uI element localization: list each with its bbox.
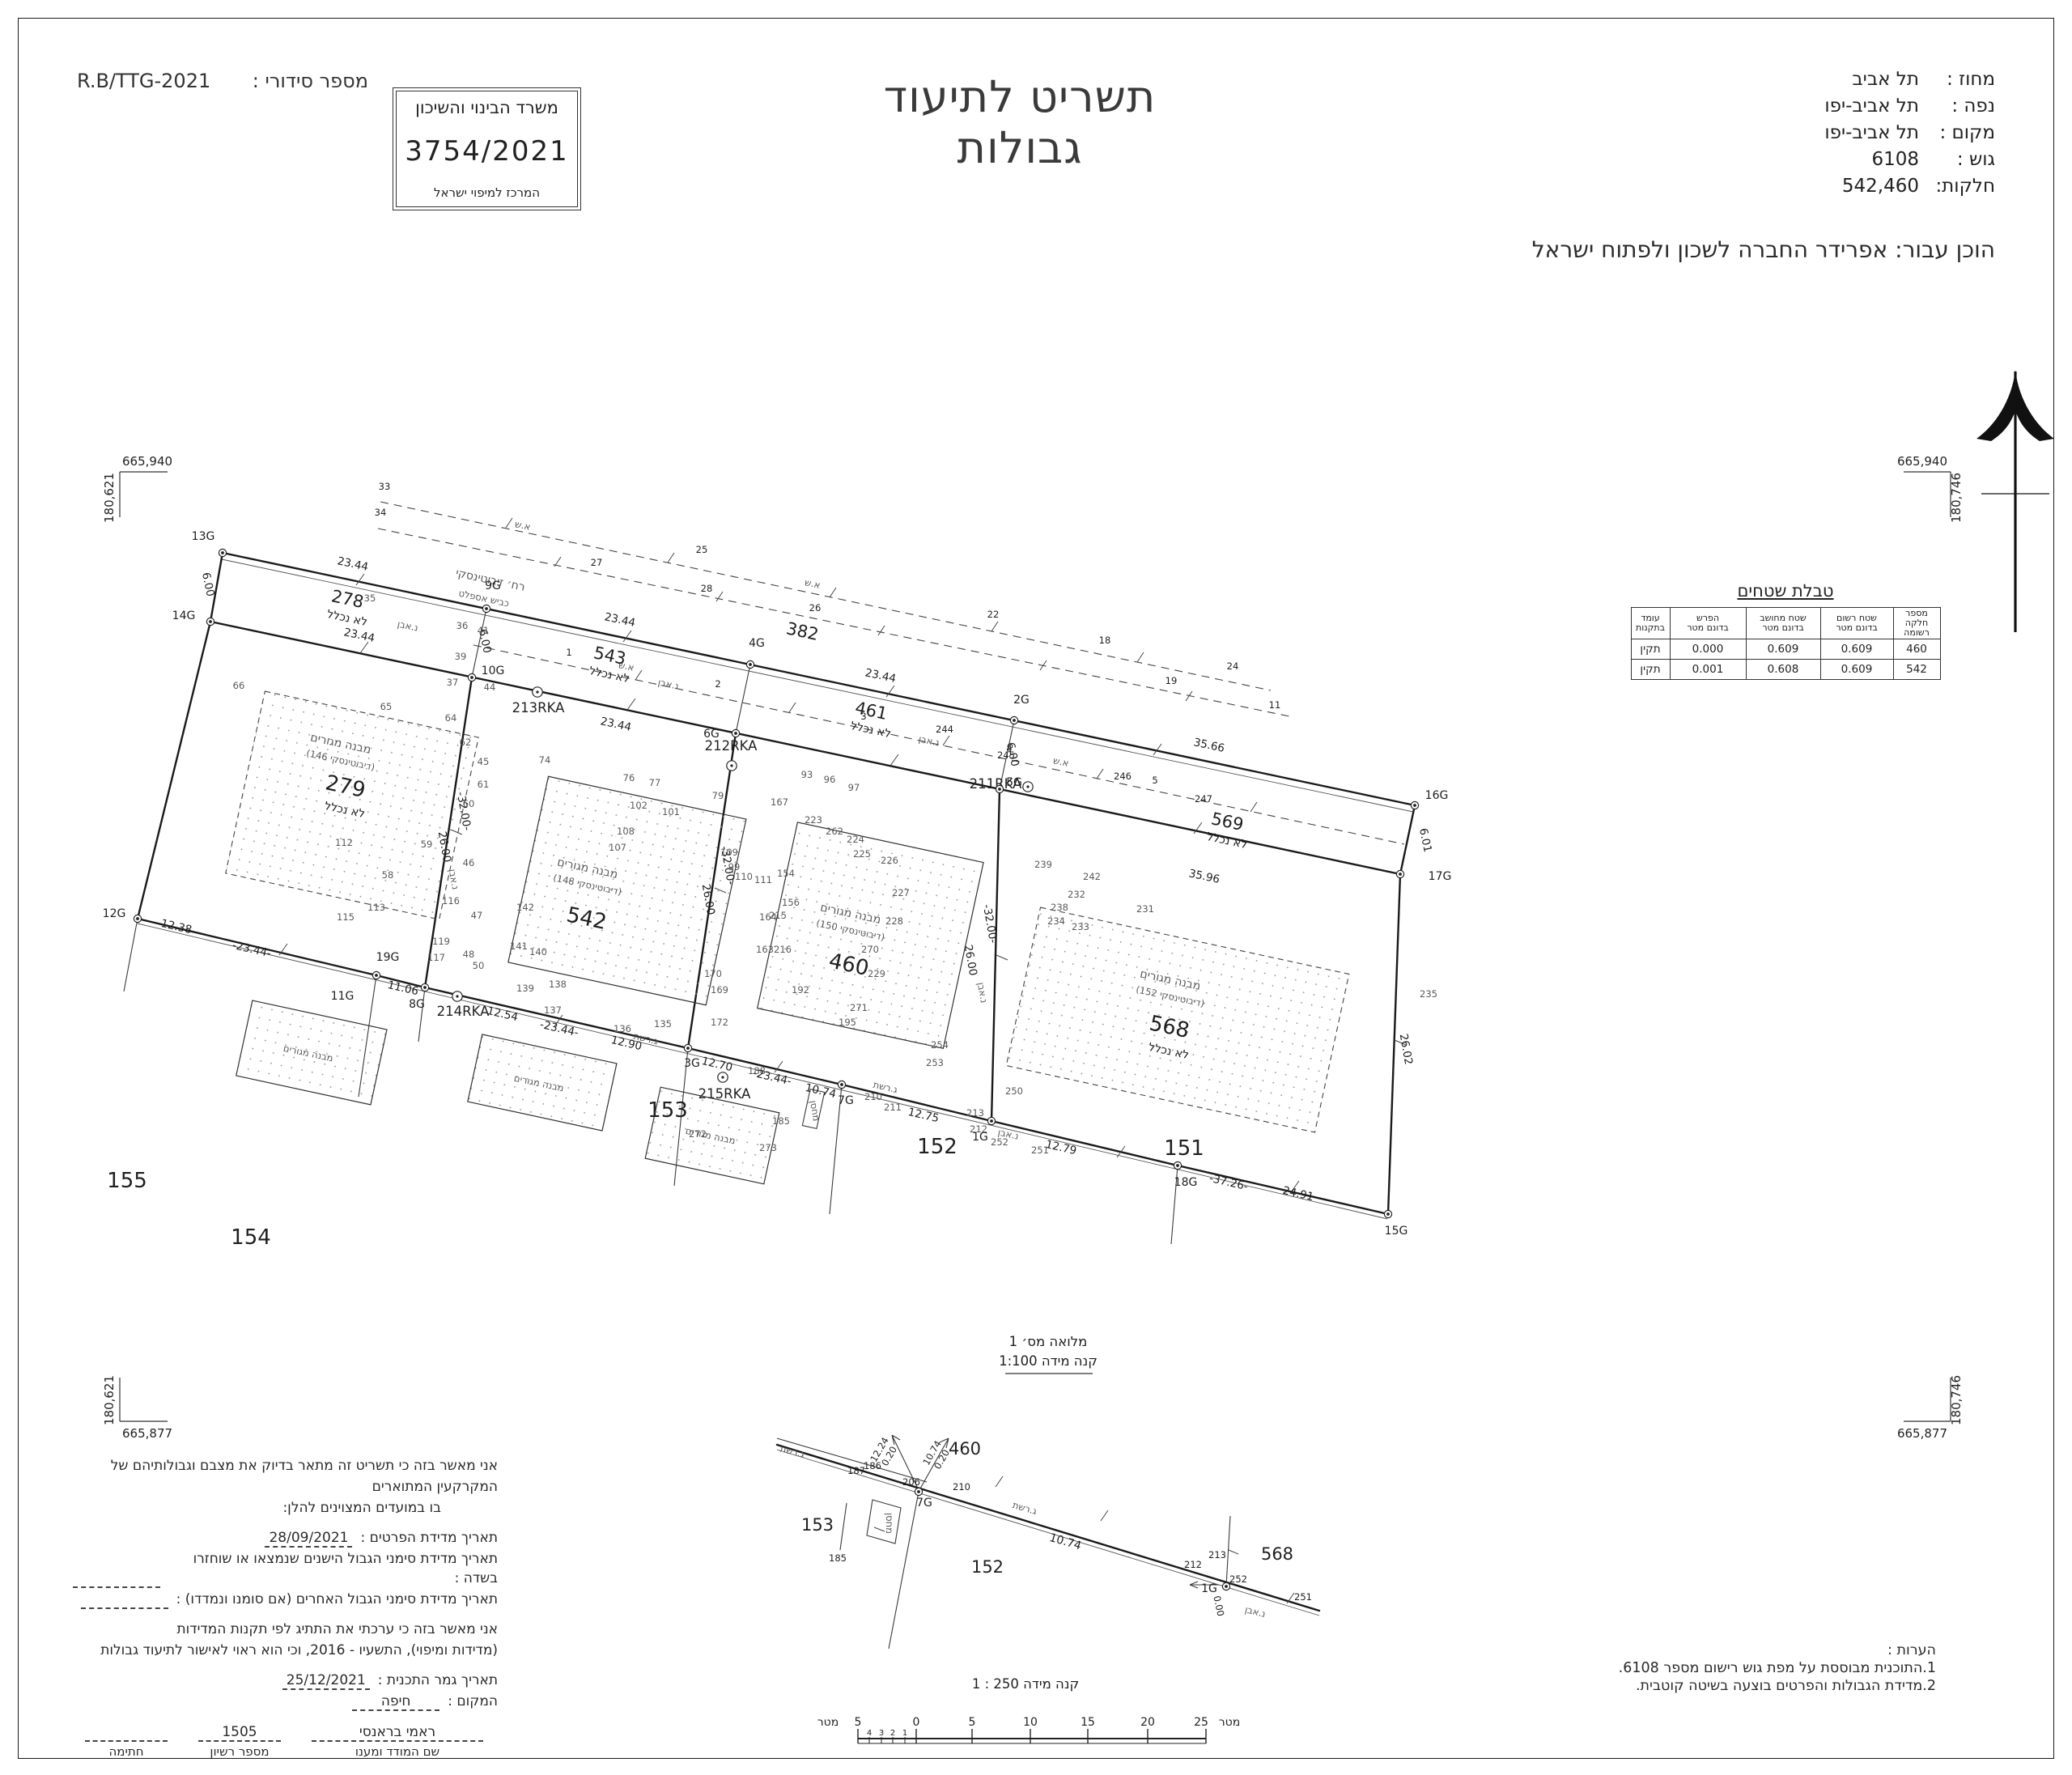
plan-label: ג.רשת — [1011, 1499, 1038, 1517]
control-point-marker — [1023, 782, 1033, 792]
plan-label: 102 — [630, 800, 647, 811]
plan-label: 35.66 — [1192, 736, 1225, 755]
boundary-point-marker — [372, 971, 380, 979]
signature-row: ראמי בראנסי שם המודד ומענו 1505 מספר רשי… — [73, 1724, 498, 1759]
boundary-point-marker — [1010, 716, 1017, 724]
boundary-point-marker — [1174, 1161, 1181, 1169]
date-value: 28/09/2021 — [265, 1531, 352, 1548]
plan-label: 62 — [460, 737, 472, 748]
plan-label: 167 — [771, 796, 788, 808]
plan-label: לא נכלל — [1205, 830, 1248, 851]
plan-label: 247 — [1195, 793, 1212, 805]
plan-label: 188 — [748, 1065, 766, 1076]
plan-label: א.ש — [1052, 754, 1070, 769]
plan-label: 13G — [192, 530, 215, 543]
plan-label: 17G — [1429, 870, 1452, 883]
areas-table-header-row: מספר חלקהרשומה שטח רשוםבדונם מטר שטח מחו… — [1631, 608, 1940, 639]
plan-label: 461 — [853, 698, 889, 724]
note-item-1: 1.התוכנית מבוססת על מפת גוש רישום מספר 6… — [1596, 1659, 1936, 1677]
plan-label: 24 — [1227, 660, 1239, 672]
boundary-point-marker — [987, 1117, 995, 1124]
plan-label: 11 — [1269, 699, 1281, 711]
sig-signature-col: חתימה — [85, 1724, 168, 1759]
survey-sheet: מספר סידורי : R.B/TTG-2021 משרד הבינוי ו… — [0, 0, 2072, 1775]
cadastral-plan: רח׳ זיבוטינסקיכביש אספלט382א.שא.שא.שא.ש2… — [101, 425, 1477, 1271]
cert-place: המקום : חיפה — [73, 1692, 498, 1711]
boundary-point-marker — [746, 660, 754, 668]
boundary-point-marker — [996, 785, 1003, 792]
plan-label: 45 — [478, 756, 490, 767]
plan-label: 170 — [704, 968, 722, 979]
plan-label: 233 — [1072, 921, 1089, 932]
areas-table-block: טבלת שטחים מספר חלקהרשומה שטח רשוםבדונם … — [1627, 581, 1944, 680]
plan-label: 23.44 — [342, 626, 376, 645]
plan-label: 226 — [881, 855, 898, 866]
info-row-place: מקום : תל אביב-יפו — [1752, 120, 1995, 147]
plan-label: 5 — [969, 1716, 976, 1729]
plan-label: 225 — [853, 848, 871, 860]
plan-label: נ.אבן — [657, 677, 680, 692]
plan-label: 569 — [1209, 809, 1245, 834]
plan-label: 153 — [801, 1515, 834, 1535]
stamp-org-name: משרד הבינוי והשיכון — [415, 98, 558, 117]
plan-label: 110 — [735, 871, 753, 882]
plan-label: 254 — [931, 1039, 949, 1051]
plan-label: 238 — [1051, 902, 1068, 913]
scale-bar-lines — [858, 1729, 1206, 1743]
plan-label: מטר — [1219, 1716, 1241, 1729]
info-row-block: גוש : 6108 — [1752, 147, 1995, 173]
areas-table-title: טבלת שטחים — [1627, 581, 1944, 601]
plan-label: 244 — [936, 724, 953, 735]
plan-label: 44 — [484, 682, 496, 693]
ministry-stamp-box: משרד הבינוי והשיכון 3754/2021 המרכז למיפ… — [393, 87, 581, 210]
boundary-point-marker — [1411, 801, 1418, 809]
plan-label: 214RKA — [437, 1004, 490, 1019]
plan-label: 1 — [902, 1729, 907, 1738]
plan-label: 1 — [566, 647, 571, 658]
surveyor-name-value: ראמי בראנסי — [312, 1724, 483, 1742]
plan-label: 154 — [777, 868, 795, 879]
table-row: 460 0.609 0.609 0.000 תקין — [1631, 639, 1940, 660]
control-point-marker — [452, 992, 462, 1001]
plan-label: 231 — [1136, 903, 1154, 915]
plan-label: 26 — [809, 602, 822, 614]
sig-name-col: ראמי בראנסי שם המודד ומענו — [312, 1724, 483, 1759]
plan-label: 210 — [953, 1481, 970, 1493]
plan-label: 115 — [337, 911, 355, 923]
plan-label: 101 — [662, 806, 680, 817]
plan-label: 11G — [331, 990, 355, 1003]
plan-label: -37.26- — [1208, 1172, 1250, 1194]
plan-label: 212 — [1184, 1559, 1202, 1570]
plan-label: 16G — [1425, 789, 1449, 802]
plan-label: 34 — [375, 507, 387, 518]
svg-text:665,877: 665,877 — [1897, 1426, 1947, 1441]
plan-label: 239 — [1034, 859, 1052, 870]
plan-label: 3 — [879, 1729, 884, 1738]
plan-label: 8G — [409, 998, 425, 1011]
plan-label: 228 — [885, 915, 903, 927]
plan-label: מחסן — [808, 1099, 822, 1122]
plan-label: 117 — [427, 952, 445, 963]
plan-label: 6.00 — [199, 571, 217, 598]
plan-label: 18G — [1174, 1176, 1198, 1189]
plan-label: 252 — [1229, 1573, 1247, 1585]
plan-label: 4G — [749, 637, 765, 650]
svg-text:665,877: 665,877 — [122, 1426, 172, 1441]
plan-label: 93 — [801, 769, 813, 780]
plan-label: 37 — [447, 677, 459, 688]
plan-label: 60 — [463, 798, 475, 809]
notes-title: הערות : — [1596, 1641, 1936, 1659]
plan-label: 139 — [516, 983, 534, 994]
col-parcel-number: מספר חלקהרשומה — [1893, 608, 1940, 639]
sig-license-col: 1505 מספר רשיון — [198, 1724, 281, 1759]
info-row-subdistrict: נפה : תל אביב-יפו — [1752, 93, 1995, 120]
plan-label: 2 — [890, 1729, 895, 1738]
grid-corner-bottom-right: 180,746 665,877 — [1894, 1368, 1983, 1461]
boundary-point-marker — [421, 983, 428, 991]
surveyor-identity-row: ראמי בראנסי רמזי קעואר - אלמותנבי 22 -חי… — [73, 1765, 498, 1775]
plan-label: 271 — [850, 1002, 868, 1013]
plan-label: 15 — [1081, 1716, 1095, 1729]
plan-label: 246 — [1114, 771, 1132, 782]
serial-value: R.B/TTG-2021 — [77, 70, 210, 92]
info-row-district: מחוז : תל אביב — [1752, 66, 1995, 93]
plan-label: 58 — [382, 869, 394, 881]
plan-label: נ.אבן — [447, 868, 461, 890]
plan-label: 2G — [1013, 694, 1030, 707]
plan-label: 0 — [913, 1716, 920, 1729]
plan-label: 141 — [510, 941, 528, 952]
plan-label: 12G — [103, 907, 126, 920]
plan-label: 250 — [1005, 1085, 1023, 1097]
plan-label: 152 — [971, 1557, 1004, 1577]
boundary-point-marker — [482, 605, 490, 612]
plan-label: 23.44 — [603, 610, 636, 630]
plan-label: 185 — [772, 1115, 790, 1127]
plan-label: 172 — [711, 1017, 728, 1028]
surveyor-certification: אני מאשר בזה כי תשריט זה מתאר בדיוק את מ… — [73, 1455, 498, 1775]
plan-label: 163 — [756, 944, 774, 955]
plan-label: 12.75 — [906, 1106, 940, 1125]
plan-label: 39 — [455, 651, 467, 662]
plan-label: 245 — [997, 749, 1015, 761]
scale-bar: 1 : 250 קנה מידהמטר50510152025מטר4321 — [813, 1666, 1267, 1763]
plan-label: 543 — [592, 643, 627, 669]
place-value: חיפה — [352, 1694, 439, 1711]
plan-label: 2 — [715, 678, 720, 690]
plan-label: 19 — [1165, 675, 1178, 686]
plan-label: 96 — [824, 774, 836, 785]
plan-label: 210 — [864, 1091, 882, 1102]
plan-label: 10.74 — [804, 1081, 837, 1101]
date-value — [73, 1586, 160, 1588]
plan-label: 213RKA — [512, 700, 565, 716]
boundary-point-marker — [838, 1081, 845, 1088]
boundary-point-marker — [206, 618, 214, 625]
plan-label: 119 — [432, 936, 450, 947]
plan-label: 77 — [649, 777, 661, 788]
plan-label: 33 — [379, 481, 391, 492]
plan-label: 1G — [1201, 1582, 1217, 1595]
plan-label: 41 — [478, 625, 490, 636]
plan-label: 97 — [848, 782, 860, 793]
plan-label: 50 — [473, 960, 485, 971]
plan-label: 4 — [867, 1729, 872, 1738]
control-point-marker — [727, 761, 737, 771]
boundary-point-marker — [219, 549, 226, 556]
boundary-point-marker — [732, 729, 739, 737]
plan-label: מטר — [817, 1716, 839, 1729]
date-value — [81, 1607, 168, 1609]
note-item-2: 2.מדידת הגבולות והפרטים בוצעה בשיטה קוטב… — [1596, 1677, 1936, 1695]
date-value: 25/12/2021 — [282, 1673, 370, 1690]
serial-label: מספר סידורי : — [253, 70, 368, 92]
plan-label: נ.אבן — [1244, 1603, 1267, 1620]
cert-date-old-markers: תאריך מדידת סימני הגבול הישנים שנמצאו או… — [73, 1549, 498, 1588]
plan-label: נ.אבן — [918, 733, 940, 749]
plan-label: 10.74 — [1048, 1531, 1083, 1552]
plan-label: 66 — [233, 680, 245, 691]
plan-label: 142 — [516, 902, 534, 913]
control-point-marker — [533, 687, 542, 697]
buildings — [226, 691, 1349, 1184]
plan-label: 251 — [1031, 1144, 1049, 1156]
plan-label: 74 — [539, 754, 551, 766]
plan-label: 23.44 — [864, 666, 897, 686]
plan-label: 26.02 — [1397, 1033, 1415, 1066]
boundary-point-marker — [1396, 870, 1403, 877]
cert-paragraph-2: אני מאשר בזה כי ערכתי את התתיג לפי תקנות… — [73, 1619, 498, 1661]
col-registered-area: שטח רשוםבדונם מטר — [1820, 608, 1893, 639]
plan-label: 15G — [1385, 1225, 1408, 1238]
control-point-marker — [718, 1072, 728, 1082]
plan-label: 195 — [839, 1017, 856, 1028]
ministry-stamp-inner: משרד הבינוי והשיכון 3754/2021 המרכז למיפ… — [396, 91, 578, 207]
plan-label: 153 — [647, 1098, 688, 1123]
plan-label: 568 — [1261, 1544, 1293, 1564]
plan-label: 0.00 — [1211, 1595, 1226, 1617]
plan-label: 234 — [1047, 915, 1065, 927]
plan-label: 215RKA — [698, 1086, 751, 1102]
plan-label: נ.אבן — [397, 618, 419, 634]
plan-label: 227 — [892, 887, 910, 898]
plan-label: 136 — [614, 1023, 631, 1034]
boundary-point-marker — [915, 1488, 922, 1495]
plan-label: 25 — [696, 544, 708, 555]
plan-label: 187 — [847, 1465, 865, 1476]
cert-date-other-markers: תאריך מדידת סימני הגבול האחרים (אם סומנו… — [73, 1590, 498, 1609]
plan-label: 79 — [712, 790, 724, 801]
plan-label: 138 — [549, 979, 567, 990]
info-row-parcels: חלקות: 542,460 — [1752, 173, 1995, 200]
plan-label: 5 — [1152, 775, 1157, 786]
plan-label: 1 : 250 קנה מידה — [972, 1676, 1079, 1692]
plan-label: 111 — [754, 874, 772, 885]
plan-label: 7G — [916, 1497, 932, 1510]
plan-label: 9G — [485, 580, 501, 592]
enlargement-inset: 1 מלואה מס׳1:100 קנה מידהג.רשת4601531525… — [753, 1331, 1352, 1663]
plan-label: 382 — [784, 618, 820, 644]
location-info-block: מחוז : תל אביב נפה : תל אביב-יפו מקום : … — [1752, 66, 1995, 200]
plan-label: 61 — [478, 779, 490, 790]
plan-label: 7G — [838, 1094, 854, 1107]
plan-label: 47 — [471, 910, 483, 921]
plan-label: 216 — [774, 944, 792, 955]
plan-label: 107 — [609, 842, 626, 853]
svg-text:665,940: 665,940 — [1897, 454, 1947, 469]
plan-label: 26.00 — [962, 944, 979, 977]
plan-label: 206 — [902, 1476, 920, 1488]
plan-label: 24.91 — [1281, 1184, 1314, 1204]
plan-label: 6G — [703, 728, 720, 741]
surveyor-big-name: ראמי בראנסי — [290, 1765, 478, 1775]
plan-label: 108 — [617, 826, 635, 837]
plan-label: 36 — [456, 620, 469, 631]
plan-label: 211 — [884, 1102, 902, 1113]
col-compliance: עומדבתקנות — [1631, 608, 1670, 639]
plan-label: לא נכלל — [849, 720, 892, 741]
plan-label: 273 — [759, 1142, 777, 1153]
plan-label: 35.96 — [1187, 867, 1221, 886]
plan-label: 235 — [1420, 988, 1437, 1000]
plan-label: 1:100 קנה מידה — [999, 1353, 1098, 1369]
plan-label: 242 — [1083, 871, 1101, 882]
plan-label: 6.01 — [1416, 827, 1434, 854]
plan-label: 12.38 — [159, 917, 193, 936]
grid-corner-bottom-left: 180,621 665,877 — [93, 1368, 182, 1461]
plan-label: 1 מלואה מס׳ — [1009, 1334, 1088, 1349]
areas-table: מספר חלקהרשומה שטח רשוםבדונם מטר שטח מחו… — [1631, 607, 1941, 680]
plan-label: 48 — [463, 949, 475, 960]
svg-text:180,621: 180,621 — [102, 1375, 117, 1425]
plan-label: מחסן — [884, 1513, 895, 1534]
plan-label: 140 — [529, 946, 547, 958]
plan-label: -23.44- — [231, 939, 273, 961]
boundary-point-marker — [468, 673, 475, 681]
plan-label: 64 — [445, 712, 457, 724]
plan-label: 156 — [782, 897, 800, 908]
plan-label: 232 — [1068, 889, 1085, 900]
plan-label: 192 — [792, 984, 809, 996]
license-number-value: 1505 — [198, 1724, 281, 1742]
plan-label: 223 — [805, 814, 822, 826]
plan-label: 11.06 — [386, 979, 419, 998]
plan-label: 213 — [966, 1107, 984, 1119]
plan-label: 23.44 — [599, 715, 632, 734]
plan-label: 135 — [654, 1018, 672, 1030]
plan-label: נ.אבן — [975, 981, 990, 1004]
plan-label: 18 — [1099, 635, 1111, 646]
boundary-point-marker — [134, 915, 141, 922]
plan-label: 152 — [917, 1135, 957, 1159]
table-row: 542 0.609 0.608 0.001 תקין — [1631, 660, 1940, 680]
plan-label: 112 — [335, 837, 353, 848]
svg-text:180,746: 180,746 — [1949, 473, 1964, 523]
plan-label: 35 — [364, 592, 376, 604]
plan-label: 23.44 — [336, 554, 369, 574]
plan-label: 28 — [701, 583, 713, 594]
plan-label: 25 — [1194, 1716, 1208, 1729]
plan-label: 65 — [380, 701, 393, 712]
stamp-mapping-center: המרכז למיפוי ישראל — [434, 185, 540, 200]
plan-label: 109 — [720, 847, 738, 858]
svg-text:180,746: 180,746 — [1949, 1375, 1964, 1425]
plan-label: 155 — [107, 1169, 147, 1193]
plan-label: 116 — [442, 895, 460, 907]
plan-label: 272 — [689, 1128, 707, 1140]
plan-label: 137 — [544, 1004, 562, 1016]
plan-label: 10G — [482, 665, 505, 677]
plan-label: 59 — [421, 839, 433, 850]
plan-label: 270 — [861, 944, 879, 955]
plan-label: 10 — [1023, 1716, 1038, 1729]
plan-label: 5 — [855, 1716, 862, 1729]
boundary-point-marker — [1384, 1210, 1391, 1217]
plan-label: 164 — [759, 911, 777, 923]
plan-label: 154 — [231, 1225, 271, 1250]
plan-label: 14G — [172, 609, 196, 622]
plan-label: 3G — [684, 1057, 700, 1070]
col-computed-area: שטח מחושבבדונם מטר — [1746, 608, 1820, 639]
plan-label: 185 — [829, 1552, 847, 1564]
plan-label: 213 — [1208, 1549, 1226, 1561]
cert-paragraph-1: אני מאשר בזה כי תשריט זה מתאר בדיוק את מ… — [73, 1455, 498, 1518]
plan-label: 212 — [970, 1123, 987, 1135]
boundary-point-marker — [1222, 1582, 1229, 1590]
plan-label: 76 — [623, 772, 635, 783]
plan-label: 20 — [1140, 1716, 1155, 1729]
plan-label: 224 — [847, 834, 864, 845]
signature-blank — [85, 1724, 168, 1742]
plan-label: 46 — [463, 857, 475, 868]
plan-label: 19G — [376, 951, 400, 964]
plan-label: 251 — [1294, 1591, 1312, 1603]
cert-date-plan-finish: תאריך גמר התכנית : 25/12/2021 — [73, 1671, 498, 1690]
plan-label: 460 — [949, 1439, 981, 1459]
plan-label: 3 — [860, 711, 866, 722]
prepared-for-line: הוכן עבור: אפרידר החברה לשכון ולפתוח ישר… — [1532, 236, 1995, 263]
serial-number-row: מספר סידורי : R.B/TTG-2021 — [77, 70, 368, 92]
boundary-point-marker — [684, 1044, 691, 1051]
notes-block: הערות : 1.התוכנית מבוססת על מפת גוש רישו… — [1596, 1641, 1936, 1695]
plan-label: 27 — [591, 557, 603, 568]
cert-date-details: תאריך מדידת הפרטים : 28/09/2021 — [73, 1528, 498, 1548]
plan-label: 229 — [868, 968, 885, 979]
plan-label: 252 — [991, 1136, 1008, 1148]
plan-label: א.ש — [804, 576, 822, 591]
grid-corner-top-right: 665,940 180,746 — [1894, 441, 1983, 534]
stamp-file-number: 3754/2021 — [405, 135, 569, 168]
plan-label: 22 — [987, 609, 1000, 620]
plan-label: 262 — [826, 826, 843, 837]
plan-label: 253 — [926, 1057, 944, 1068]
plan-label: 5G — [1006, 776, 1022, 789]
plan-label: 113 — [367, 902, 385, 913]
page-title: תשריט לתיעוד גבולות — [826, 71, 1214, 173]
plan-label: 151 — [1164, 1136, 1204, 1161]
plan-label: 169 — [711, 984, 728, 996]
plan-label: 278 — [329, 586, 365, 612]
col-difference: הפרשבדונם מטר — [1670, 608, 1746, 639]
